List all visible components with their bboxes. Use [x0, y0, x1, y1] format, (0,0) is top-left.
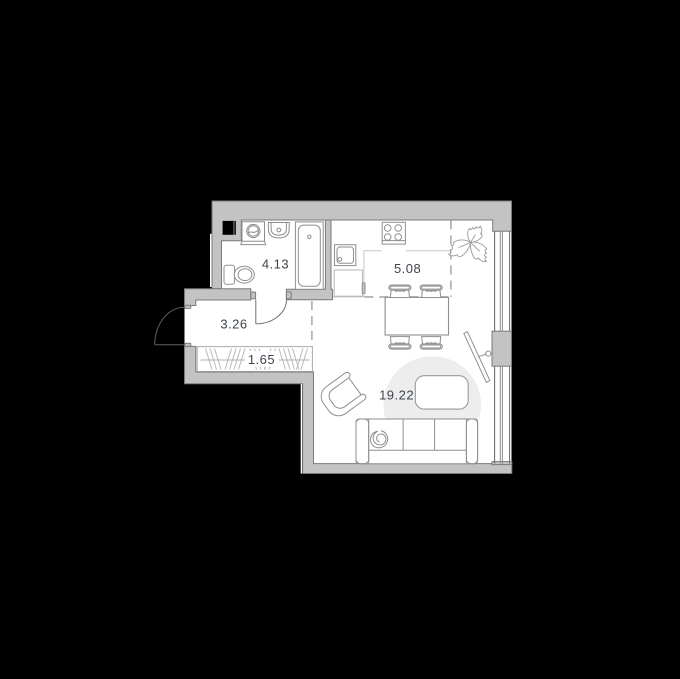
- svg-text:19.22: 19.22: [379, 388, 414, 403]
- svg-text:4.13: 4.13: [262, 257, 289, 272]
- svg-text:3.26: 3.26: [220, 317, 247, 332]
- svg-text:5.08: 5.08: [394, 261, 421, 276]
- svg-text:1.65: 1.65: [248, 352, 275, 367]
